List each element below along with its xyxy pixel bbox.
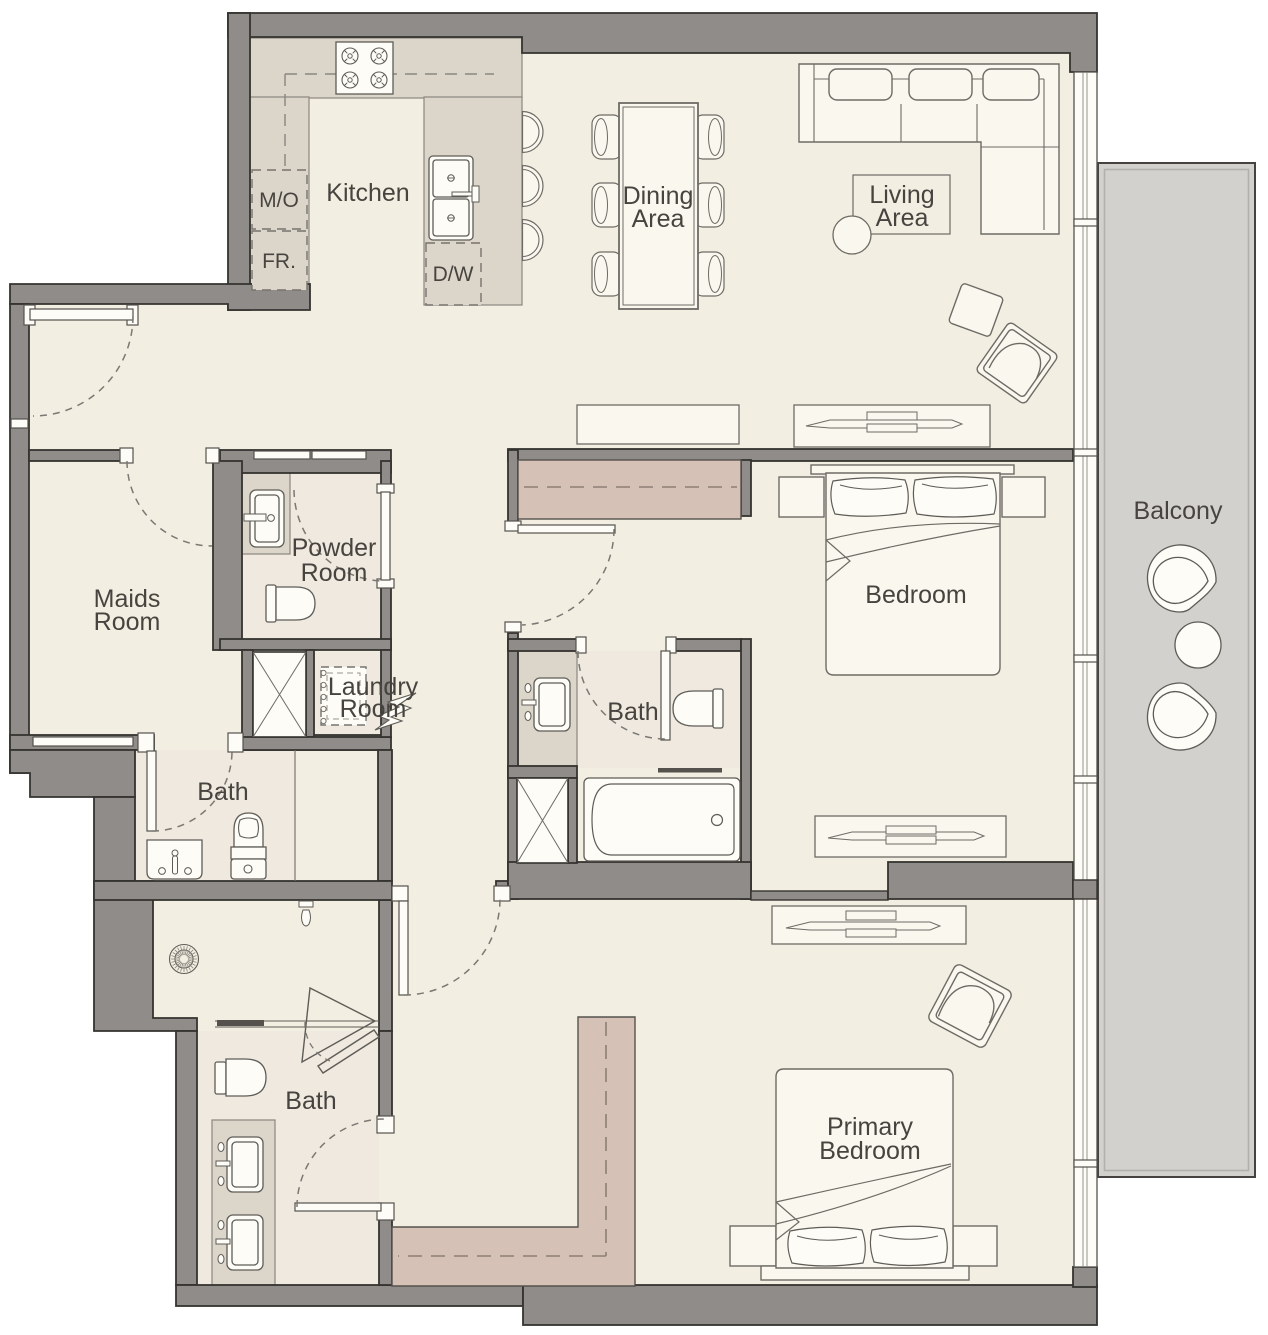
svg-text:Room: Room <box>94 608 161 636</box>
svg-text:Bedroom: Bedroom <box>819 1137 920 1165</box>
svg-text:D/W: D/W <box>433 263 474 286</box>
svg-text:Kitchen: Kitchen <box>326 179 409 207</box>
svg-text:Bath: Bath <box>607 698 658 726</box>
svg-text:Bedroom: Bedroom <box>865 581 966 609</box>
svg-text:Bath: Bath <box>285 1087 336 1115</box>
svg-text:Bath: Bath <box>197 778 248 806</box>
svg-text:Room: Room <box>340 695 407 723</box>
svg-text:FR.: FR. <box>262 250 296 273</box>
svg-text:Room: Room <box>301 559 368 587</box>
svg-text:Area: Area <box>632 205 685 233</box>
svg-text:Area: Area <box>876 204 929 232</box>
svg-text:Powder: Powder <box>292 534 377 562</box>
svg-text:M/O: M/O <box>259 189 299 212</box>
svg-text:Balcony: Balcony <box>1134 497 1223 525</box>
